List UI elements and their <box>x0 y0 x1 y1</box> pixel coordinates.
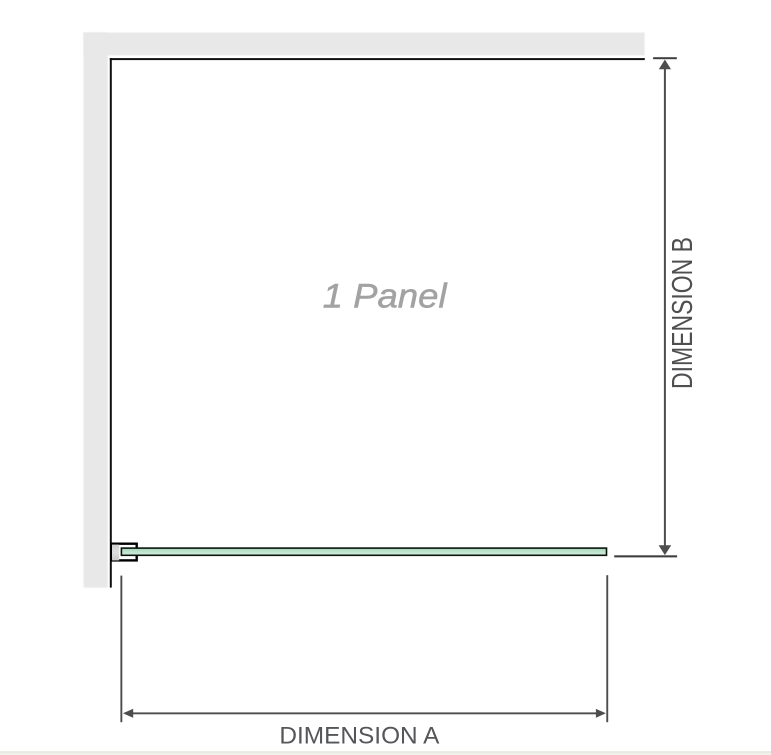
svg-text:DIMENSION A: DIMENSION A <box>279 723 439 750</box>
svg-text:1 Panel: 1 Panel <box>323 278 449 316</box>
svg-text:DIMENSION B: DIMENSION B <box>667 237 699 389</box>
